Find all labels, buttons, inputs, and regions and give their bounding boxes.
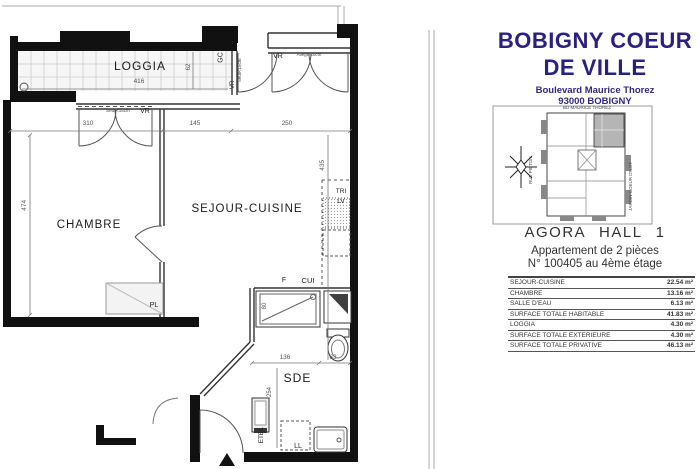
room-label-chambre: CHAMBRE bbox=[49, 220, 129, 232]
room-label-loggia: LOGGIA bbox=[105, 60, 175, 72]
dim-loggia-width: 416 bbox=[124, 79, 154, 86]
label-cui: CUI bbox=[296, 277, 320, 285]
keyplan-garden-right: JARDIN COEUR D'ILOT bbox=[629, 156, 634, 216]
label-etel: ETEL bbox=[259, 421, 266, 449]
surface-label: SEJOUR-CUISINE bbox=[510, 279, 565, 286]
label-fridge: F bbox=[278, 277, 290, 284]
dim-middle: 145 bbox=[180, 121, 210, 128]
address-line1: Boulevard Maurice Thorez bbox=[470, 85, 700, 96]
label-pl: PL bbox=[146, 302, 162, 309]
surface-value: 6.13 m² bbox=[671, 300, 693, 307]
label-allege: Allège 20cm bbox=[288, 53, 330, 58]
surface-value: 4.30 m² bbox=[671, 321, 693, 328]
table-row: LOGGIA4.30 m² bbox=[508, 319, 695, 330]
surface-label: CHAMBRE bbox=[510, 290, 543, 297]
label-vr-chambre: VR bbox=[136, 108, 154, 115]
surface-value: 13.16 m² bbox=[667, 290, 693, 297]
surface-label: SURFACE TOTALE PRIVATIVE bbox=[510, 342, 602, 349]
dim-sde-width: 136 bbox=[270, 355, 300, 362]
label-ll: LL bbox=[290, 443, 306, 450]
dim-sejour-window: 250 bbox=[272, 121, 302, 128]
label-seuil-chambre: Seuil<15cm bbox=[100, 109, 136, 114]
surface-value: 41.83 m² bbox=[667, 311, 693, 318]
surface-label: SURFACE TOTALE EXTERIEURE bbox=[510, 332, 610, 339]
apartment-type: Appartement de 2 pièces bbox=[470, 245, 700, 257]
dim-sejour-depth: 435 bbox=[320, 150, 327, 180]
table-row: SALLE D'EAU6.13 m² bbox=[508, 298, 695, 309]
dim-sde-depth: 254 bbox=[267, 380, 273, 404]
table-row: CHAMBRE13.16 m² bbox=[508, 288, 695, 299]
label-tri: TRI bbox=[330, 189, 352, 196]
table-row: SEJOUR-CUISINE22.54 m² bbox=[508, 276, 695, 288]
keyplan-street-left: RUE PIETON bbox=[529, 150, 534, 190]
surface-value: 22.54 m² bbox=[667, 279, 693, 286]
surface-label: LOGGIA bbox=[510, 321, 535, 328]
room-label-sde: SDE bbox=[275, 372, 320, 384]
label-gc: GC bbox=[218, 49, 225, 67]
surface-table: SEJOUR-CUISINE22.54 m² CHAMBRE13.16 m² S… bbox=[508, 276, 695, 352]
dim-sde-wc: 63 bbox=[320, 355, 346, 362]
surface-value: 4.30 m² bbox=[671, 332, 693, 339]
table-row: SURFACE TOTALE EXTERIEURE4.30 m² bbox=[508, 330, 695, 341]
project-title-line2: DE VILLE bbox=[470, 55, 700, 81]
room-label-sejour-cuisine: SEJOUR-CUISINE bbox=[180, 204, 314, 216]
surface-value: 46.13 m² bbox=[667, 342, 693, 349]
surface-label: SURFACE TOTALE HABITABLE bbox=[510, 311, 604, 318]
floorplan-sheet: LOGGIA CHAMBRE SEJOUR-CUISINE SDE GC Seu… bbox=[0, 0, 700, 469]
label-vr-loggia: VR bbox=[230, 75, 236, 95]
dim-loggia-depth: 62 bbox=[186, 57, 192, 77]
label-lv: LV bbox=[331, 199, 351, 206]
project-title-line1: BOBIGNY COEUR bbox=[470, 28, 700, 54]
apartment-number: N° 100405 au 4ème étage bbox=[470, 258, 700, 270]
building-name: AGORA HALL 1 bbox=[470, 224, 700, 241]
dim-chambre-window: 310 bbox=[70, 121, 106, 128]
dim-shower: 80 bbox=[262, 296, 268, 316]
label-seuil-loggia: Seuil<15cm bbox=[238, 52, 243, 88]
label-vr-sejour: VR bbox=[269, 53, 287, 60]
table-row: SURFACE TOTALE PRIVATIVE46.13 m² bbox=[508, 340, 695, 351]
dim-chambre-depth: 474 bbox=[22, 190, 29, 220]
keyplan-street-top: BD MAURICE THOREZ bbox=[548, 106, 626, 111]
table-row: SURFACE TOTALE HABITABLE41.83 m² bbox=[508, 309, 695, 320]
surface-label: SALLE D'EAU bbox=[510, 300, 551, 307]
